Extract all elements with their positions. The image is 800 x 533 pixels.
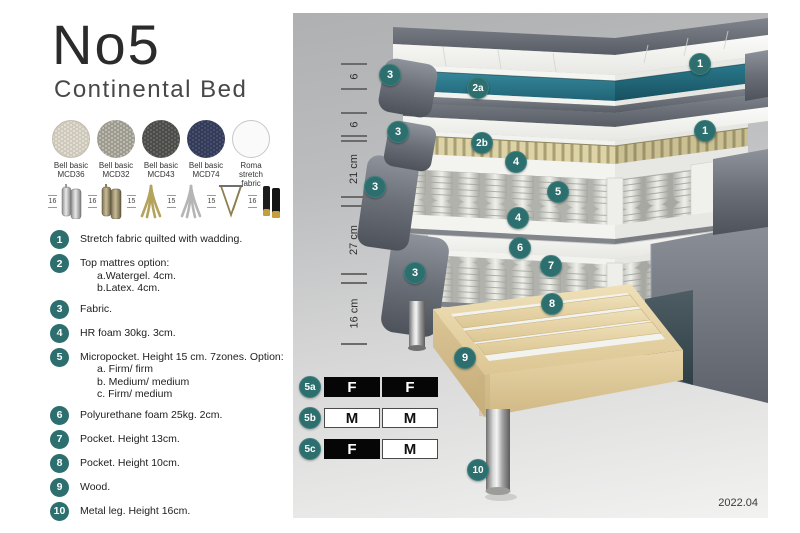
feature-text: Micropocket. Height 15 cm. 7zones. Optio… (80, 348, 284, 401)
callout-badge-6: 6 (509, 237, 531, 259)
feature-list: 1 Stretch fabric quilted with wadding. 2… (50, 230, 298, 526)
callout-badge-8: 8 (541, 293, 563, 315)
leg-options: 16 16 15 (46, 180, 286, 222)
feature-number-badge: 4 (50, 324, 69, 343)
callout-badge-9: 9 (454, 347, 476, 369)
callout-badge-3-27cm: 3 (404, 262, 426, 284)
fabric-swatch-circle (187, 120, 225, 158)
feature-item-7: 7 Pocket. Height 13cm. (50, 430, 298, 449)
feature-text: Pocket. Height 10cm. (80, 454, 180, 473)
firmness-row-5b: 5b M M (299, 407, 440, 429)
feature-text: Stretch fabric quilted with wadding. (80, 230, 242, 249)
leg-height-value: 15 (208, 198, 216, 205)
feature-item-1: 1 Stretch fabric quilted with wadding. (50, 230, 298, 249)
swatch-name: Bell basic (189, 161, 223, 170)
version-label: 2022.04 (718, 497, 758, 509)
fabric-swatch-label: Bell basicMCD74 (189, 161, 223, 179)
callout-badge-2b: 2b (471, 132, 493, 154)
leg-option-splay-gold: 15 (126, 180, 166, 222)
feature-text: Metal leg. Height 16cm. (80, 502, 190, 521)
cylinder-silver-leg-icon (58, 183, 84, 219)
product-title: No5 (52, 12, 161, 77)
feature-text: HR foam 30kg. 3cm. (80, 324, 176, 343)
firmness-cell: M (382, 439, 438, 459)
page: No5 Continental Bed Bell basicMCD36 Bell… (0, 0, 800, 533)
cylinder-black-gold-leg-icon (258, 183, 284, 219)
leg-height-value: 15 (168, 198, 176, 205)
swatch-code: MCD43 (147, 170, 174, 179)
callout-badge-4-top: 4 (505, 151, 527, 173)
feature-item-6: 6 Polyurethane foam 25kg. 2cm. (50, 406, 298, 425)
leg-height-value: 16 (89, 198, 97, 205)
metal-leg-back (408, 301, 426, 351)
feature-item-9: 9 Wood. (50, 478, 298, 497)
hairpin-leg-icon (217, 183, 245, 219)
leg-height-label: 15 (167, 195, 176, 208)
feature-text: Fabric. (80, 300, 112, 319)
callout-badge-3-21cm: 3 (364, 176, 386, 198)
feature-item-4: 4 HR foam 30kg. 3cm. (50, 324, 298, 343)
feature-sub-line: a.Watergel. 4cm. (97, 270, 176, 283)
feature-main-line: Micropocket. Height 15 cm. 7zones. Optio… (80, 351, 284, 364)
leg-height-label: 16 (48, 195, 57, 208)
cylinder-bronze-leg-icon (98, 183, 124, 219)
leg-height-label: 15 (207, 195, 216, 208)
feature-text: Top mattres option: a.Watergel. 4cm. b.L… (80, 254, 176, 295)
feature-sub-line: b.Latex. 4cm. (97, 282, 176, 295)
leg-option-cylinder-black-gold: 16 (246, 180, 286, 222)
feature-number-badge: 1 (50, 230, 69, 249)
callout-badge-4-bottom: 4 (507, 207, 529, 229)
swatch-name: Bell basic (144, 161, 178, 170)
splay-gold-leg-icon (137, 183, 165, 219)
feature-number-badge: 3 (50, 300, 69, 319)
fabric-swatch-label: Bell basicMCD36 (54, 161, 88, 179)
ruler-segment-21cm: 21 cm (341, 140, 367, 198)
leg-option-hairpin: 15 (206, 180, 246, 222)
feature-number-badge: 6 (50, 406, 69, 425)
feature-number-badge: 7 (50, 430, 69, 449)
fabric-swatches: Bell basicMCD36 Bell basicMCD32 Bell bas… (50, 120, 272, 188)
fabric-swatch-label: Bell basicMCD43 (144, 161, 178, 179)
fabric-swatch-circle (232, 120, 270, 158)
feature-number-badge: 8 (50, 454, 69, 473)
callout-badge-1-top: 1 (689, 53, 711, 75)
firmness-cell: M (324, 408, 380, 428)
leg-option-cylinder-silver: 16 (46, 180, 86, 222)
leg-height-value: 15 (128, 198, 136, 205)
fabric-swatch-circle (52, 120, 90, 158)
ruler-segment-16cm: 16 cm (341, 282, 367, 345)
feature-text: Wood. (80, 478, 110, 497)
fabric-swatch-mcd74: Bell basicMCD74 (185, 120, 227, 188)
swatch-code: MCD74 (192, 170, 219, 179)
fabric-swatch-circle (97, 120, 135, 158)
feature-sub-line: b. Medium/ medium (97, 376, 284, 389)
feature-text: Pocket. Height 13cm. (80, 430, 180, 449)
swatch-name: Bell basic (99, 161, 133, 170)
firmness-cell: F (324, 377, 380, 397)
ruler-segment-27cm: 27 cm (341, 205, 367, 275)
splay-silver-leg-icon (177, 183, 205, 219)
product-subtitle: Continental Bed (54, 76, 247, 104)
swatch-name: Bell basic (54, 161, 88, 170)
topper-layer (393, 18, 768, 113)
feature-number-badge: 2 (50, 254, 69, 273)
micropocket-21cm-layer (403, 93, 768, 244)
feature-number-badge: 10 (50, 502, 69, 521)
firmness-cell: F (324, 439, 380, 459)
fabric-swatch-label: Bell basicMCD32 (99, 161, 133, 179)
leg-height-label: 16 (88, 195, 97, 208)
leg-height-value: 16 (49, 198, 57, 205)
callout-badge-5: 5 (547, 181, 569, 203)
fabric-swatch-mcd36: Bell basicMCD36 (50, 120, 92, 188)
feature-item-10: 10 Metal leg. Height 16cm. (50, 502, 298, 521)
fabric-swatch-mcd32: Bell basicMCD32 (95, 120, 137, 188)
feature-item-5: 5 Micropocket. Height 15 cm. 7zones. Opt… (50, 348, 298, 401)
feature-item-3: 3 Fabric. (50, 300, 298, 319)
feature-item-2: 2 Top mattres option: a.Watergel. 4cm. b… (50, 254, 298, 295)
swatch-code: MCD32 (102, 170, 129, 179)
leg-option-cylinder-bronze: 16 (86, 180, 126, 222)
firmness-badge-5a: 5a (299, 376, 321, 398)
fabric-swatch-roma: Romastretch fabric (230, 120, 272, 188)
info-panel: No5 Continental Bed Bell basicMCD36 Bell… (0, 0, 293, 533)
diagram-panel: 6 6 21 cm 27 cm 16 cm 1 3 2a 1 3 2b 4 5 … (293, 13, 768, 518)
firmness-cell: F (382, 377, 438, 397)
callout-badge-2a: 2a (467, 77, 489, 99)
feature-number-badge: 5 (50, 348, 69, 367)
leg-height-value: 16 (249, 198, 257, 205)
fabric-swatch-mcd43: Bell basicMCD43 (140, 120, 182, 188)
fabric-swatch-circle (142, 120, 180, 158)
metal-leg-front (485, 409, 517, 501)
swatch-name: Roma (240, 161, 261, 170)
firmness-badge-5b: 5b (299, 407, 321, 429)
leg-height-label: 16 (248, 195, 257, 208)
feature-sub-line: a. Firm/ firm (97, 363, 284, 376)
firmness-cell: M (382, 408, 438, 428)
feature-sub-line: c. Firm/ medium (97, 388, 284, 401)
firmness-row-5c: 5c F M (299, 438, 440, 460)
firmness-row-5a: 5a F F (299, 376, 440, 398)
callout-badge-10: 10 (467, 459, 489, 481)
feature-main-line: Top mattres option: (80, 257, 176, 270)
firmness-badge-5c: 5c (299, 438, 321, 460)
leg-option-splay-silver: 15 (166, 180, 206, 222)
swatch-code: MCD36 (57, 170, 84, 179)
feature-number-badge: 9 (50, 478, 69, 497)
feature-item-8: 8 Pocket. Height 10cm. (50, 454, 298, 473)
callout-badge-1-second: 1 (694, 120, 716, 142)
feature-text: Polyurethane foam 25kg. 2cm. (80, 406, 222, 425)
callout-badge-3-latex: 3 (387, 121, 409, 143)
callout-badge-7: 7 (540, 255, 562, 277)
ruler-label: 16 cm (325, 271, 384, 357)
callout-badge-3-topper: 3 (379, 64, 401, 86)
leg-height-label: 15 (127, 195, 136, 208)
